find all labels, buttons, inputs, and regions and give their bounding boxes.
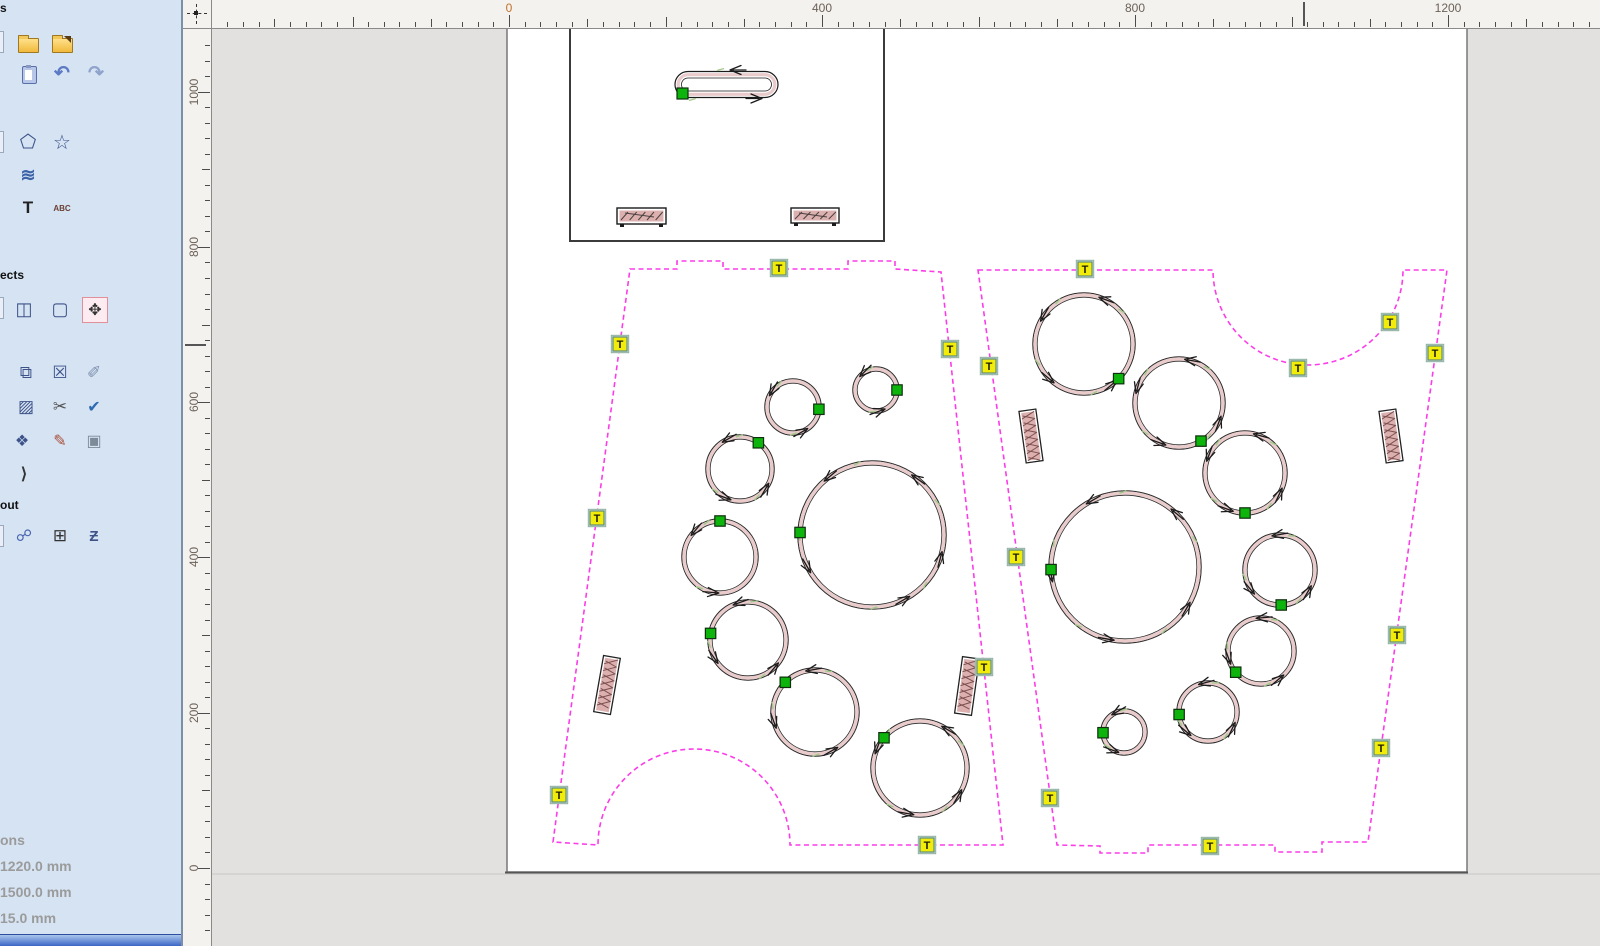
ruler-tick bbox=[205, 464, 210, 465]
flip-icon[interactable]: ◫ bbox=[12, 297, 36, 321]
ruler-tick bbox=[1464, 22, 1465, 27]
ruler-label: 400 bbox=[802, 1, 842, 15]
shape-tool-icon[interactable] bbox=[0, 131, 4, 153]
tab-marker-letter: T bbox=[1394, 630, 1401, 642]
ruler-tick bbox=[1072, 22, 1073, 27]
polyline-icon[interactable]: ⟩ bbox=[12, 462, 36, 486]
ruler-tick bbox=[478, 22, 479, 27]
tab-marker[interactable]: T bbox=[1289, 359, 1306, 376]
ruler-tick bbox=[205, 573, 210, 574]
tab-marker-letter: T bbox=[617, 339, 624, 351]
ruler-tick bbox=[1182, 22, 1183, 27]
ruler-tick bbox=[462, 22, 463, 27]
ruler-tick bbox=[603, 22, 604, 27]
ruler-tick bbox=[205, 806, 210, 807]
ruler-tick bbox=[1589, 22, 1590, 27]
toolbar-sidebar: s ects out ↶↷⬠☆≋TABC◫▢✥⧉☒✐▨✂✔❖✎▣⟩☍⊞Ƶ ons… bbox=[0, 0, 183, 946]
tab-marker[interactable]: T bbox=[980, 357, 997, 374]
tab-marker[interactable]: T bbox=[1388, 626, 1405, 643]
ruler-tick bbox=[259, 22, 260, 27]
measure-icon[interactable]: ✐ bbox=[82, 361, 106, 385]
tab-marker[interactable]: T bbox=[1381, 313, 1398, 330]
ruler-tick bbox=[202, 169, 210, 170]
tab-marker[interactable]: T bbox=[941, 340, 958, 357]
tab-marker[interactable]: T bbox=[1426, 344, 1443, 361]
ruler-tick bbox=[1495, 22, 1496, 27]
ruler-tick bbox=[205, 262, 210, 263]
ruler-tick bbox=[572, 22, 573, 27]
tab-marker[interactable]: T bbox=[588, 509, 605, 526]
ruler-tick bbox=[384, 22, 385, 27]
tab-marker-letter: T bbox=[947, 344, 954, 356]
start-node[interactable] bbox=[1046, 564, 1056, 574]
ruler-tick bbox=[1401, 22, 1402, 27]
cursor-position-marker bbox=[185, 344, 206, 346]
start-node[interactable] bbox=[1196, 436, 1206, 446]
tab-marker-letter: T bbox=[1082, 264, 1089, 276]
ruler-tick bbox=[963, 22, 964, 27]
tab-marker-letter: T bbox=[1387, 317, 1394, 329]
ruler-tick bbox=[775, 22, 776, 27]
ruler-tick bbox=[202, 325, 210, 326]
tab-part[interactable] bbox=[617, 208, 666, 227]
ruler-tick bbox=[1370, 19, 1371, 27]
ruler-tick bbox=[205, 542, 210, 543]
array-grid-icon[interactable]: ⊞ bbox=[48, 524, 72, 548]
ruler-tick bbox=[202, 790, 210, 791]
tab-foot bbox=[832, 223, 836, 226]
distort-icon[interactable]: ▢ bbox=[48, 297, 72, 321]
ruler-tick bbox=[869, 22, 870, 27]
ruler-origin-box[interactable] bbox=[183, 0, 212, 29]
ruler-tick bbox=[205, 76, 210, 77]
tab-marker-letter: T bbox=[1047, 793, 1054, 805]
ruler-tick bbox=[759, 22, 760, 27]
ruler-tick bbox=[306, 22, 307, 27]
effect-extra-icon[interactable] bbox=[0, 297, 4, 319]
ruler-tick bbox=[744, 19, 745, 27]
ruler-tick bbox=[205, 123, 210, 124]
ruler-tick bbox=[806, 22, 807, 27]
ruler-tick bbox=[205, 231, 210, 232]
start-node[interactable] bbox=[1113, 373, 1123, 383]
ruler-tick bbox=[205, 821, 210, 822]
ruler-tick bbox=[634, 22, 635, 27]
tab-marker-letter: T bbox=[776, 263, 783, 275]
tab-marker[interactable]: T bbox=[1076, 260, 1093, 277]
clipboard-glyph bbox=[22, 66, 37, 84]
ruler-tick bbox=[1245, 22, 1246, 27]
tab-marker[interactable]: T bbox=[1041, 789, 1058, 806]
ruler-tick bbox=[885, 22, 886, 27]
ruler-tick bbox=[1151, 22, 1152, 27]
ruler-tick bbox=[1479, 22, 1480, 27]
start-node[interactable] bbox=[1276, 600, 1286, 610]
ruler-tick bbox=[205, 294, 210, 295]
undo-icon[interactable]: ↶ bbox=[50, 61, 74, 85]
ruler-tick bbox=[1010, 22, 1011, 27]
paste-icon[interactable] bbox=[17, 63, 41, 87]
open-file-icon[interactable] bbox=[16, 31, 40, 55]
ruler-tick bbox=[1025, 22, 1026, 27]
ruler-tick bbox=[202, 480, 210, 481]
ruler-tick bbox=[540, 22, 541, 27]
window-bottom-edge bbox=[0, 934, 181, 946]
ruler-tick bbox=[1104, 22, 1105, 27]
ruler-tick bbox=[205, 915, 210, 916]
ruler-tick bbox=[205, 45, 210, 46]
ruler-tick bbox=[205, 61, 210, 62]
start-node[interactable] bbox=[1174, 709, 1184, 719]
start-node[interactable] bbox=[1231, 667, 1241, 677]
tab-marker-letter: T bbox=[986, 361, 993, 373]
tab-marker[interactable]: T bbox=[918, 836, 935, 853]
ruler-tick bbox=[205, 744, 210, 745]
ruler-tick bbox=[525, 22, 526, 27]
ruler-tick bbox=[697, 22, 698, 27]
ruler-tick bbox=[619, 22, 620, 27]
ruler-tick bbox=[205, 728, 210, 729]
ruler-tick bbox=[650, 22, 651, 27]
ruler-tick bbox=[853, 22, 854, 27]
tab-foot bbox=[659, 224, 663, 227]
start-node[interactable] bbox=[1098, 728, 1108, 738]
ruler-tick bbox=[1354, 22, 1355, 27]
tab-marker[interactable]: T bbox=[1007, 548, 1024, 565]
ruler-tick bbox=[227, 22, 228, 27]
clone-icon[interactable]: ⧉ bbox=[14, 361, 38, 385]
tab-marker-letter: T bbox=[1207, 841, 1214, 853]
tab-marker-letter: T bbox=[924, 840, 931, 852]
tab-marker-letter: T bbox=[981, 662, 988, 674]
ruler-tick bbox=[205, 495, 210, 496]
section-header-layout: out bbox=[0, 498, 19, 512]
ruler-tick bbox=[399, 22, 400, 27]
ruler-tick bbox=[205, 387, 210, 388]
ruler-tick bbox=[205, 371, 210, 372]
ruler-tick bbox=[509, 15, 510, 27]
ruler-label: 200 bbox=[187, 693, 201, 733]
tab-marker[interactable]: T bbox=[1372, 739, 1389, 756]
ruler-tick bbox=[1088, 22, 1089, 27]
ruler-tick bbox=[1558, 22, 1559, 27]
ruler-tick bbox=[1229, 22, 1230, 27]
ruler-tick bbox=[1526, 19, 1527, 27]
center-move-icon[interactable]: ✥ bbox=[82, 297, 108, 323]
ruler-tick bbox=[368, 22, 369, 27]
ruler-tick bbox=[205, 620, 210, 621]
ruler-tick bbox=[1041, 22, 1042, 27]
ruler-tick bbox=[1338, 22, 1339, 27]
spiral-tool-icon[interactable]: ≋ bbox=[16, 163, 40, 187]
ruler-tick bbox=[1573, 22, 1574, 27]
ruler-tick bbox=[274, 19, 275, 27]
tab-marker-letter: T bbox=[594, 513, 601, 525]
ruler-tick bbox=[205, 200, 210, 201]
ruler-tick bbox=[556, 22, 557, 27]
ruler-tick bbox=[321, 22, 322, 27]
ruler-tick bbox=[1307, 22, 1308, 27]
ruler-tick bbox=[205, 216, 210, 217]
tab-foot bbox=[794, 223, 798, 226]
ruler-tick bbox=[205, 884, 210, 885]
ruler-tick bbox=[205, 930, 210, 931]
origin-dot-icon bbox=[194, 11, 198, 15]
cut-path-icon[interactable]: ✂ bbox=[48, 395, 72, 419]
ruler-tick bbox=[1135, 15, 1136, 27]
start-node[interactable] bbox=[705, 628, 715, 638]
ruler-tick bbox=[979, 17, 980, 27]
tab-marker-letter: T bbox=[1295, 363, 1302, 375]
start-node[interactable] bbox=[677, 88, 688, 99]
tab-marker-letter: T bbox=[1378, 743, 1385, 755]
tab-marker[interactable]: T bbox=[1201, 837, 1218, 854]
ruler-label: 0 bbox=[489, 1, 529, 15]
ruler-tick bbox=[205, 759, 210, 760]
ruler-tick bbox=[205, 604, 210, 605]
ruler-tick bbox=[1542, 22, 1543, 27]
ruler-tick bbox=[205, 309, 210, 310]
ruler-tick bbox=[205, 154, 210, 155]
pentagon-tool-icon[interactable]: ⬠ bbox=[16, 130, 40, 154]
ruler-tick bbox=[916, 22, 917, 27]
ruler-tick bbox=[1260, 22, 1261, 27]
start-node[interactable] bbox=[892, 385, 902, 395]
ruler-tick bbox=[205, 185, 210, 186]
ruler-tick bbox=[1511, 22, 1512, 27]
ruler-tick bbox=[431, 19, 432, 27]
folder-glyph bbox=[18, 38, 39, 53]
start-node[interactable] bbox=[715, 516, 725, 526]
ruler-tick bbox=[1276, 22, 1277, 27]
hatch-fill-icon[interactable]: ▨ bbox=[14, 395, 38, 419]
folder-glyph bbox=[52, 38, 73, 53]
ruler-tick bbox=[791, 22, 792, 27]
ruler-tick bbox=[1166, 22, 1167, 27]
link-nodes-icon[interactable]: ☍ bbox=[12, 524, 36, 548]
tab-marker[interactable]: T bbox=[770, 259, 787, 276]
cursor-position-marker bbox=[1303, 2, 1305, 26]
redo-icon[interactable]: ↷ bbox=[84, 61, 108, 85]
ruler-tick bbox=[1198, 22, 1199, 27]
vertical-ruler: 02004006008001000 bbox=[183, 29, 212, 946]
tab-marker-letter: T bbox=[556, 790, 563, 802]
ruler-tick bbox=[205, 138, 210, 139]
ruler-tick bbox=[205, 278, 210, 279]
arc-text-tool-icon[interactable]: ABC bbox=[50, 196, 74, 220]
ruler-tick bbox=[337, 22, 338, 27]
tab-marker-letter: T bbox=[1013, 552, 1020, 564]
ruler-tick bbox=[205, 511, 210, 512]
ruler-tick bbox=[1448, 15, 1449, 27]
ruler-tick bbox=[994, 22, 995, 27]
import-file-icon[interactable] bbox=[50, 31, 74, 55]
ruler-tick bbox=[712, 22, 713, 27]
ruler-label: 800 bbox=[1115, 1, 1155, 15]
start-node[interactable] bbox=[780, 677, 790, 687]
ruler-tick bbox=[493, 22, 494, 27]
ruler-label: 0 bbox=[187, 848, 201, 888]
tab-marker[interactable]: T bbox=[975, 658, 992, 675]
ruler-tick bbox=[1432, 22, 1433, 27]
ruler-tick bbox=[666, 17, 667, 27]
obround-slot[interactable] bbox=[675, 66, 778, 104]
section-header-files: s bbox=[0, 1, 7, 15]
ruler-tick bbox=[205, 775, 210, 776]
ruler-tick bbox=[587, 19, 588, 27]
ruler-tick bbox=[838, 22, 839, 27]
ruler-tick bbox=[202, 635, 210, 636]
ruler-tick bbox=[1292, 17, 1293, 27]
text-tool-icon[interactable]: T bbox=[16, 196, 40, 220]
start-node[interactable] bbox=[879, 733, 889, 743]
layout-extra-icon[interactable] bbox=[0, 525, 4, 547]
dimensions-label: ons bbox=[0, 832, 25, 848]
ruler-tick bbox=[205, 852, 210, 853]
ruler-tick bbox=[205, 526, 210, 527]
drawing-canvas[interactable]: TTTTTTTTTTTTTTTTT bbox=[212, 29, 1600, 946]
ruler-tick bbox=[205, 651, 210, 652]
ruler-tick bbox=[415, 22, 416, 27]
check-icon[interactable]: ✔ bbox=[82, 395, 106, 419]
nest-icon[interactable]: Ƶ bbox=[82, 524, 106, 548]
ruler-tick bbox=[205, 697, 210, 698]
ruler-tick bbox=[728, 22, 729, 27]
start-node[interactable] bbox=[795, 527, 805, 537]
ruler-tick bbox=[205, 107, 210, 108]
ruler-label: 1000 bbox=[187, 72, 201, 112]
drawing-surface[interactable]: TTTTTTTTTTTTTTTTT bbox=[212, 29, 1600, 946]
ruler-tick bbox=[205, 356, 210, 357]
ruler-tick bbox=[290, 22, 291, 27]
ruler-tick bbox=[1213, 19, 1214, 27]
sheet-width-value: 1220.0 mm bbox=[0, 858, 72, 874]
tab-marker[interactable]: T bbox=[550, 786, 567, 803]
sheet-thickness-value: 15.0 mm bbox=[0, 910, 56, 926]
ruler-tick bbox=[900, 19, 901, 27]
tab-foot bbox=[620, 224, 624, 227]
section-header-effects: ects bbox=[0, 268, 24, 282]
star-tool-icon[interactable]: ☆ bbox=[50, 130, 74, 154]
ruler-tick bbox=[1057, 19, 1058, 27]
ruler-label: 600 bbox=[187, 382, 201, 422]
ruler-tick bbox=[1385, 22, 1386, 27]
ruler-tick bbox=[205, 899, 210, 900]
ruler-tick bbox=[205, 340, 210, 341]
ruler-tick bbox=[205, 837, 210, 838]
ruler-label: 1200 bbox=[1428, 1, 1468, 15]
start-node[interactable] bbox=[814, 404, 824, 414]
ruler-tick bbox=[947, 22, 948, 27]
ruler-tick bbox=[205, 433, 210, 434]
ruler-tick bbox=[446, 22, 447, 27]
ruler-tick bbox=[205, 666, 210, 667]
import-arrow-glyph bbox=[64, 36, 71, 43]
ruler-tick bbox=[205, 589, 210, 590]
draw-edit-icon[interactable]: ✎ bbox=[48, 429, 72, 453]
tab-marker[interactable]: T bbox=[611, 335, 628, 352]
ruler-tick bbox=[681, 22, 682, 27]
start-node[interactable] bbox=[1240, 508, 1250, 518]
node-edit-icon[interactable]: ❖ bbox=[10, 429, 34, 453]
ruler-tick bbox=[1119, 22, 1120, 27]
ruler-tick bbox=[205, 682, 210, 683]
ruler-tick bbox=[205, 418, 210, 419]
ruler-tick bbox=[1323, 22, 1324, 27]
start-node[interactable] bbox=[753, 438, 763, 448]
ruler-tick bbox=[1417, 22, 1418, 27]
sheet-height-value: 1500.0 mm bbox=[0, 884, 72, 900]
new-file-icon[interactable] bbox=[0, 31, 4, 53]
ruler-label: 800 bbox=[187, 227, 201, 267]
ruler-tick bbox=[205, 449, 210, 450]
tab-marker-letter: T bbox=[1432, 348, 1439, 360]
horizontal-ruler: 04008001200 bbox=[212, 0, 1600, 29]
ruler-tick bbox=[243, 22, 244, 27]
ruler-label: 400 bbox=[187, 537, 201, 577]
tab-part[interactable] bbox=[791, 208, 839, 226]
ruler-tick bbox=[822, 15, 823, 27]
ruler-tick bbox=[932, 22, 933, 27]
ruler-tick bbox=[353, 17, 354, 27]
application-window: s ects out ↶↷⬠☆≋TABC◫▢✥⧉☒✐▨✂✔❖✎▣⟩☍⊞Ƶ ons… bbox=[0, 0, 1600, 946]
image-icon[interactable]: ▣ bbox=[82, 429, 106, 453]
delete-clone-icon[interactable]: ☒ bbox=[48, 361, 72, 385]
